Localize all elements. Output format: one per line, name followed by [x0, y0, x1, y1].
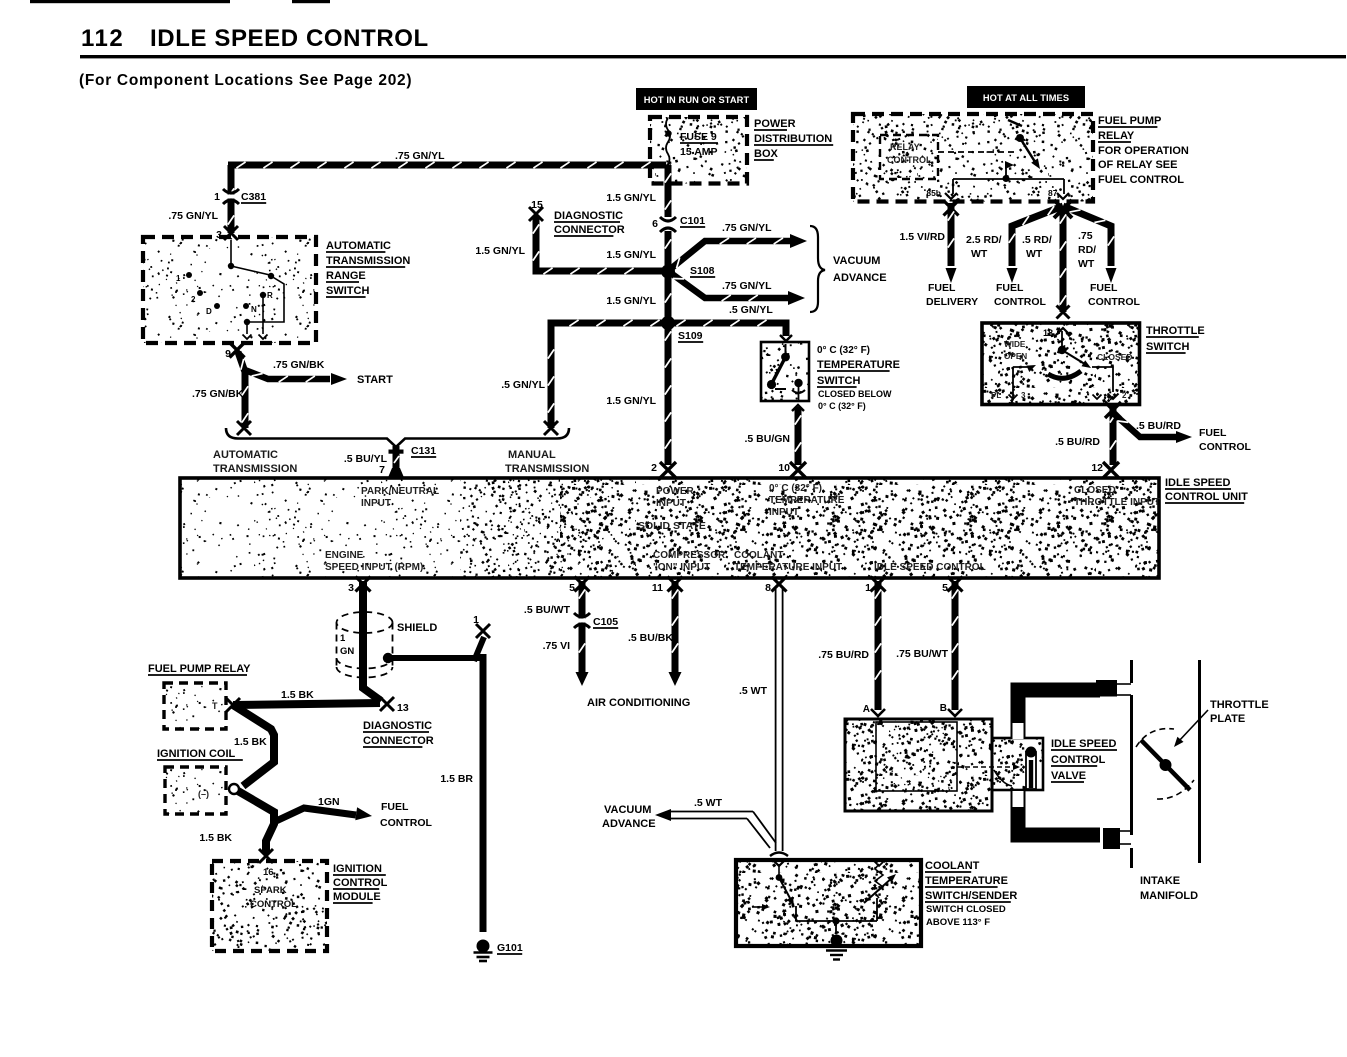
svg-text:THROTTLE: THROTTLE [1210, 699, 1269, 711]
svg-text:1.5 BK: 1.5 BK [281, 689, 314, 701]
svg-text:BOX: BOX [754, 148, 779, 160]
svg-text:CONTROL: CONTROL [380, 817, 432, 829]
svg-text:RANGE: RANGE [326, 270, 366, 282]
svg-text:.5 WT: .5 WT [694, 797, 723, 809]
svg-text:C131: C131 [411, 445, 436, 457]
svg-text:COOLANT: COOLANT [925, 860, 980, 872]
svg-text:IDLE SPEED: IDLE SPEED [1165, 477, 1230, 489]
svg-text:D: D [206, 307, 212, 316]
svg-text:COOLANT: COOLANT [734, 550, 783, 561]
svg-text:IDLE SPEED CONTROL: IDLE SPEED CONTROL [874, 562, 986, 573]
svg-text:5: 5 [569, 582, 575, 594]
svg-text:.5 BU/WT: .5 BU/WT [524, 604, 571, 616]
svg-text:C105: C105 [593, 616, 618, 628]
svg-text:.5 BU/BK: .5 BU/BK [628, 632, 673, 644]
svg-text:12: 12 [1091, 462, 1103, 474]
svg-text:TEMPERATURE: TEMPERATURE [925, 875, 1008, 887]
svg-text:INPUT: INPUT [656, 498, 686, 509]
svg-text:INPUT: INPUT [769, 507, 799, 518]
svg-text:CONTROL: CONTROL [1199, 441, 1251, 453]
svg-text:FUEL: FUEL [928, 282, 956, 294]
svg-text:C381: C381 [241, 191, 266, 203]
svg-text:PL: PL [991, 391, 1001, 400]
svg-text:POWER: POWER [754, 118, 796, 130]
svg-text:OF RELAY SEE: OF RELAY SEE [1098, 159, 1177, 171]
svg-text:"ON" INPUT: "ON" INPUT [653, 562, 710, 573]
svg-text:FUEL PUMP: FUEL PUMP [1098, 115, 1161, 127]
svg-text:85b: 85b [926, 188, 941, 198]
svg-text:13: 13 [397, 702, 409, 714]
svg-text:CLOSED: CLOSED [1097, 352, 1132, 362]
svg-text:IDLE SPEED CONTROL: IDLE SPEED CONTROL [150, 25, 429, 52]
svg-text:SOLID STATE: SOLID STATE [638, 520, 706, 532]
svg-text:5: 5 [942, 582, 948, 594]
svg-text:ENGINE: ENGINE [325, 550, 364, 561]
svg-text:DIAGNOSTIC: DIAGNOSTIC [363, 720, 432, 732]
svg-text:FUEL PUMP RELAY: FUEL PUMP RELAY [148, 663, 251, 675]
svg-text:1GN: 1GN [318, 796, 340, 808]
svg-text:FUEL: FUEL [1090, 282, 1118, 294]
svg-text:TRANSMISSION: TRANSMISSION [213, 463, 297, 475]
svg-text:CLOSED: CLOSED [1074, 485, 1116, 496]
svg-text:2: 2 [651, 462, 657, 474]
svg-text:18: 18 [1043, 328, 1053, 338]
svg-text:MANIFOLD: MANIFOLD [1140, 890, 1198, 902]
svg-text:WT: WT [1078, 258, 1095, 270]
svg-text:.75 GN/YL: .75 GN/YL [722, 280, 772, 292]
svg-text:SWITCH/SENDER: SWITCH/SENDER [925, 890, 1017, 902]
svg-text:START: START [357, 374, 393, 386]
svg-text:1.5 VI/RD: 1.5 VI/RD [899, 231, 945, 243]
svg-text:TEMPERATURE INPUT: TEMPERATURE INPUT [734, 562, 842, 573]
svg-text:10: 10 [778, 462, 790, 474]
svg-text:SWITCH: SWITCH [817, 375, 860, 387]
svg-text:.75 GN/BK: .75 GN/BK [192, 388, 244, 400]
svg-text:1: 1 [865, 582, 871, 594]
svg-text:RELAY: RELAY [1098, 130, 1135, 142]
svg-text:S108: S108 [690, 265, 715, 277]
svg-text:TEMPERATURE: TEMPERATURE [769, 495, 845, 506]
svg-text:MANUAL: MANUAL [508, 449, 556, 461]
svg-text:AIR CONDITIONING: AIR CONDITIONING [587, 697, 690, 709]
svg-text:WT: WT [1026, 248, 1043, 260]
svg-text:ADVANCE: ADVANCE [833, 272, 887, 284]
svg-text:FUEL: FUEL [1199, 427, 1227, 439]
svg-text:1: 1 [176, 274, 181, 283]
svg-text:0° C (32° F): 0° C (32° F) [817, 345, 870, 356]
svg-text:IGNITION COIL: IGNITION COIL [157, 748, 236, 760]
svg-text:2: 2 [1122, 391, 1127, 400]
svg-text:.75: .75 [1078, 230, 1093, 242]
svg-text:VALVE: VALVE [1051, 770, 1086, 782]
svg-text:.75 GN/YL: .75 GN/YL [168, 210, 218, 222]
svg-text:TRANSMISSION: TRANSMISSION [326, 255, 410, 267]
svg-text:CONTROL: CONTROL [994, 296, 1046, 308]
svg-text:RELAY: RELAY [890, 142, 920, 152]
svg-text:CLOSED BELOW: CLOSED BELOW [818, 389, 892, 399]
svg-text:SWITCH CLOSED: SWITCH CLOSED [926, 904, 1006, 915]
svg-text:2.5 RD/: 2.5 RD/ [966, 234, 1002, 246]
svg-text:.5 RD/: .5 RD/ [1022, 234, 1052, 246]
svg-text:AUTOMATIC: AUTOMATIC [213, 449, 278, 461]
svg-text:SWITCH: SWITCH [326, 285, 369, 297]
svg-text:(For Component Locations See P: (For Component Locations See Page 202) [79, 72, 412, 89]
svg-text:HOT IN RUN OR START: HOT IN RUN OR START [644, 95, 750, 105]
svg-text:1: 1 [214, 191, 220, 203]
svg-text:HOT AT ALL TIMES: HOT AT ALL TIMES [983, 93, 1069, 103]
svg-text:R: R [267, 291, 273, 300]
svg-text:1.5 GN/YL: 1.5 GN/YL [606, 395, 656, 407]
svg-text:G101: G101 [497, 942, 523, 954]
svg-text:1.5 BK: 1.5 BK [234, 736, 267, 748]
svg-text:.75 GN/YL: .75 GN/YL [395, 150, 445, 162]
svg-text:FUEL: FUEL [996, 282, 1024, 294]
svg-text:IGNITION: IGNITION [333, 863, 382, 875]
svg-text:SWITCH: SWITCH [1146, 341, 1189, 353]
svg-text:8: 8 [765, 582, 771, 594]
svg-text:.5 GN/YL: .5 GN/YL [729, 304, 773, 316]
svg-text:SHIELD: SHIELD [397, 622, 437, 634]
svg-text:CONNECTOR: CONNECTOR [554, 224, 625, 236]
svg-text:.75 GN/YL: .75 GN/YL [722, 222, 772, 234]
svg-text:ADVANCE: ADVANCE [602, 818, 656, 830]
svg-text:N: N [251, 305, 257, 314]
svg-text:OPEN: OPEN [1004, 352, 1027, 361]
svg-text:SPARK: SPARK [254, 885, 287, 896]
svg-text:.5 WT: .5 WT [739, 685, 768, 697]
svg-text:CONTROL: CONTROL [1088, 296, 1140, 308]
svg-text:.75 BU/RD: .75 BU/RD [818, 649, 869, 661]
svg-text:15 AMP: 15 AMP [680, 146, 718, 158]
svg-text:TEMPERATURE: TEMPERATURE [817, 359, 900, 371]
svg-text:CONTROL: CONTROL [887, 155, 932, 165]
svg-text:0° C (32° F): 0° C (32° F) [818, 401, 866, 411]
svg-text:S109: S109 [678, 330, 703, 342]
svg-text:9: 9 [225, 348, 231, 360]
svg-text:.75 VI: .75 VI [543, 640, 571, 652]
svg-text:16: 16 [263, 867, 274, 878]
svg-text:1: 1 [340, 633, 346, 644]
svg-text:3: 3 [1021, 391, 1026, 400]
svg-text:THROTTLE: THROTTLE [1146, 325, 1205, 337]
svg-text:CONTROL UNIT: CONTROL UNIT [1165, 491, 1248, 503]
svg-text:GN: GN [340, 646, 354, 657]
svg-text:WIDE: WIDE [1004, 340, 1026, 349]
svg-text:DIAGNOSTIC: DIAGNOSTIC [554, 210, 623, 222]
svg-text:2: 2 [191, 295, 196, 304]
svg-text:1.5 GN/YL: 1.5 GN/YL [606, 192, 656, 204]
svg-text:.5 BU/RD: .5 BU/RD [1055, 436, 1100, 448]
svg-text:112: 112 [81, 25, 124, 52]
svg-text:3: 3 [348, 582, 354, 594]
svg-text:VACUUM: VACUUM [604, 804, 651, 816]
svg-text:PLATE: PLATE [1210, 713, 1245, 725]
svg-text:TRANSMISSION: TRANSMISSION [505, 463, 589, 475]
svg-text:THROTTLE INPUT: THROTTLE INPUT [1074, 497, 1160, 508]
svg-text:FUEL: FUEL [381, 801, 409, 813]
svg-text:1.5 GN/YL: 1.5 GN/YL [606, 249, 656, 261]
svg-text:.75 BU/WT: .75 BU/WT [896, 648, 949, 660]
svg-text:CONTROL: CONTROL [250, 899, 297, 910]
svg-text:.5 GN/YL: .5 GN/YL [501, 379, 545, 391]
svg-text:T: T [212, 701, 218, 711]
svg-text:FOR OPERATION: FOR OPERATION [1098, 145, 1189, 157]
svg-text:RD/: RD/ [1078, 244, 1096, 256]
svg-text:COMPRESSOR: COMPRESSOR [653, 550, 726, 561]
svg-text:1.5 BR: 1.5 BR [440, 773, 473, 785]
svg-text:1.5 GN/YL: 1.5 GN/YL [475, 245, 525, 257]
svg-text:IDLE SPEED: IDLE SPEED [1051, 738, 1116, 750]
svg-text:0° C (32° F): 0° C (32° F) [769, 483, 822, 494]
svg-text:DELIVERY: DELIVERY [926, 296, 978, 308]
svg-text:VACUUM: VACUUM [833, 255, 880, 267]
svg-text:CONTROL: CONTROL [1051, 754, 1106, 766]
svg-text:7: 7 [379, 464, 385, 476]
svg-text:.75 GN/BK: .75 GN/BK [273, 359, 325, 371]
svg-text:MODULE: MODULE [333, 891, 381, 903]
svg-text:PARK/NEUTRAL: PARK/NEUTRAL [361, 486, 439, 497]
svg-text:AUTOMATIC: AUTOMATIC [326, 240, 391, 252]
svg-text:SPEED INPUT (RPM): SPEED INPUT (RPM) [325, 562, 423, 573]
svg-text:A: A [863, 704, 870, 715]
svg-text:DISTRIBUTION: DISTRIBUTION [754, 133, 832, 145]
svg-text:WT: WT [971, 248, 988, 260]
svg-text:INTAKE: INTAKE [1140, 875, 1180, 887]
svg-text:POWER: POWER [656, 486, 695, 497]
svg-text:.5 BU/GN: .5 BU/GN [744, 433, 790, 445]
svg-text:15: 15 [531, 199, 543, 211]
svg-text:CONNECTOR: CONNECTOR [363, 735, 434, 747]
svg-text:.5 BU/RD: .5 BU/RD [1136, 420, 1181, 432]
svg-text:ABOVE 113° F: ABOVE 113° F [926, 917, 990, 928]
svg-text:(–): (–) [198, 789, 209, 799]
svg-text:1: 1 [473, 614, 479, 626]
svg-text:6: 6 [652, 218, 658, 230]
svg-text:FUSE 9: FUSE 9 [680, 131, 717, 143]
svg-text:C101: C101 [680, 215, 705, 227]
svg-text:FUEL CONTROL: FUEL CONTROL [1098, 174, 1184, 186]
svg-text:CONTROL: CONTROL [333, 877, 388, 889]
svg-text:11: 11 [652, 582, 663, 594]
svg-text:INPUT: INPUT [361, 498, 391, 509]
svg-text:B: B [940, 703, 947, 714]
svg-text:87: 87 [1048, 188, 1058, 198]
svg-text:1.5 GN/YL: 1.5 GN/YL [606, 295, 656, 307]
svg-text:1.5 BK: 1.5 BK [199, 832, 232, 844]
